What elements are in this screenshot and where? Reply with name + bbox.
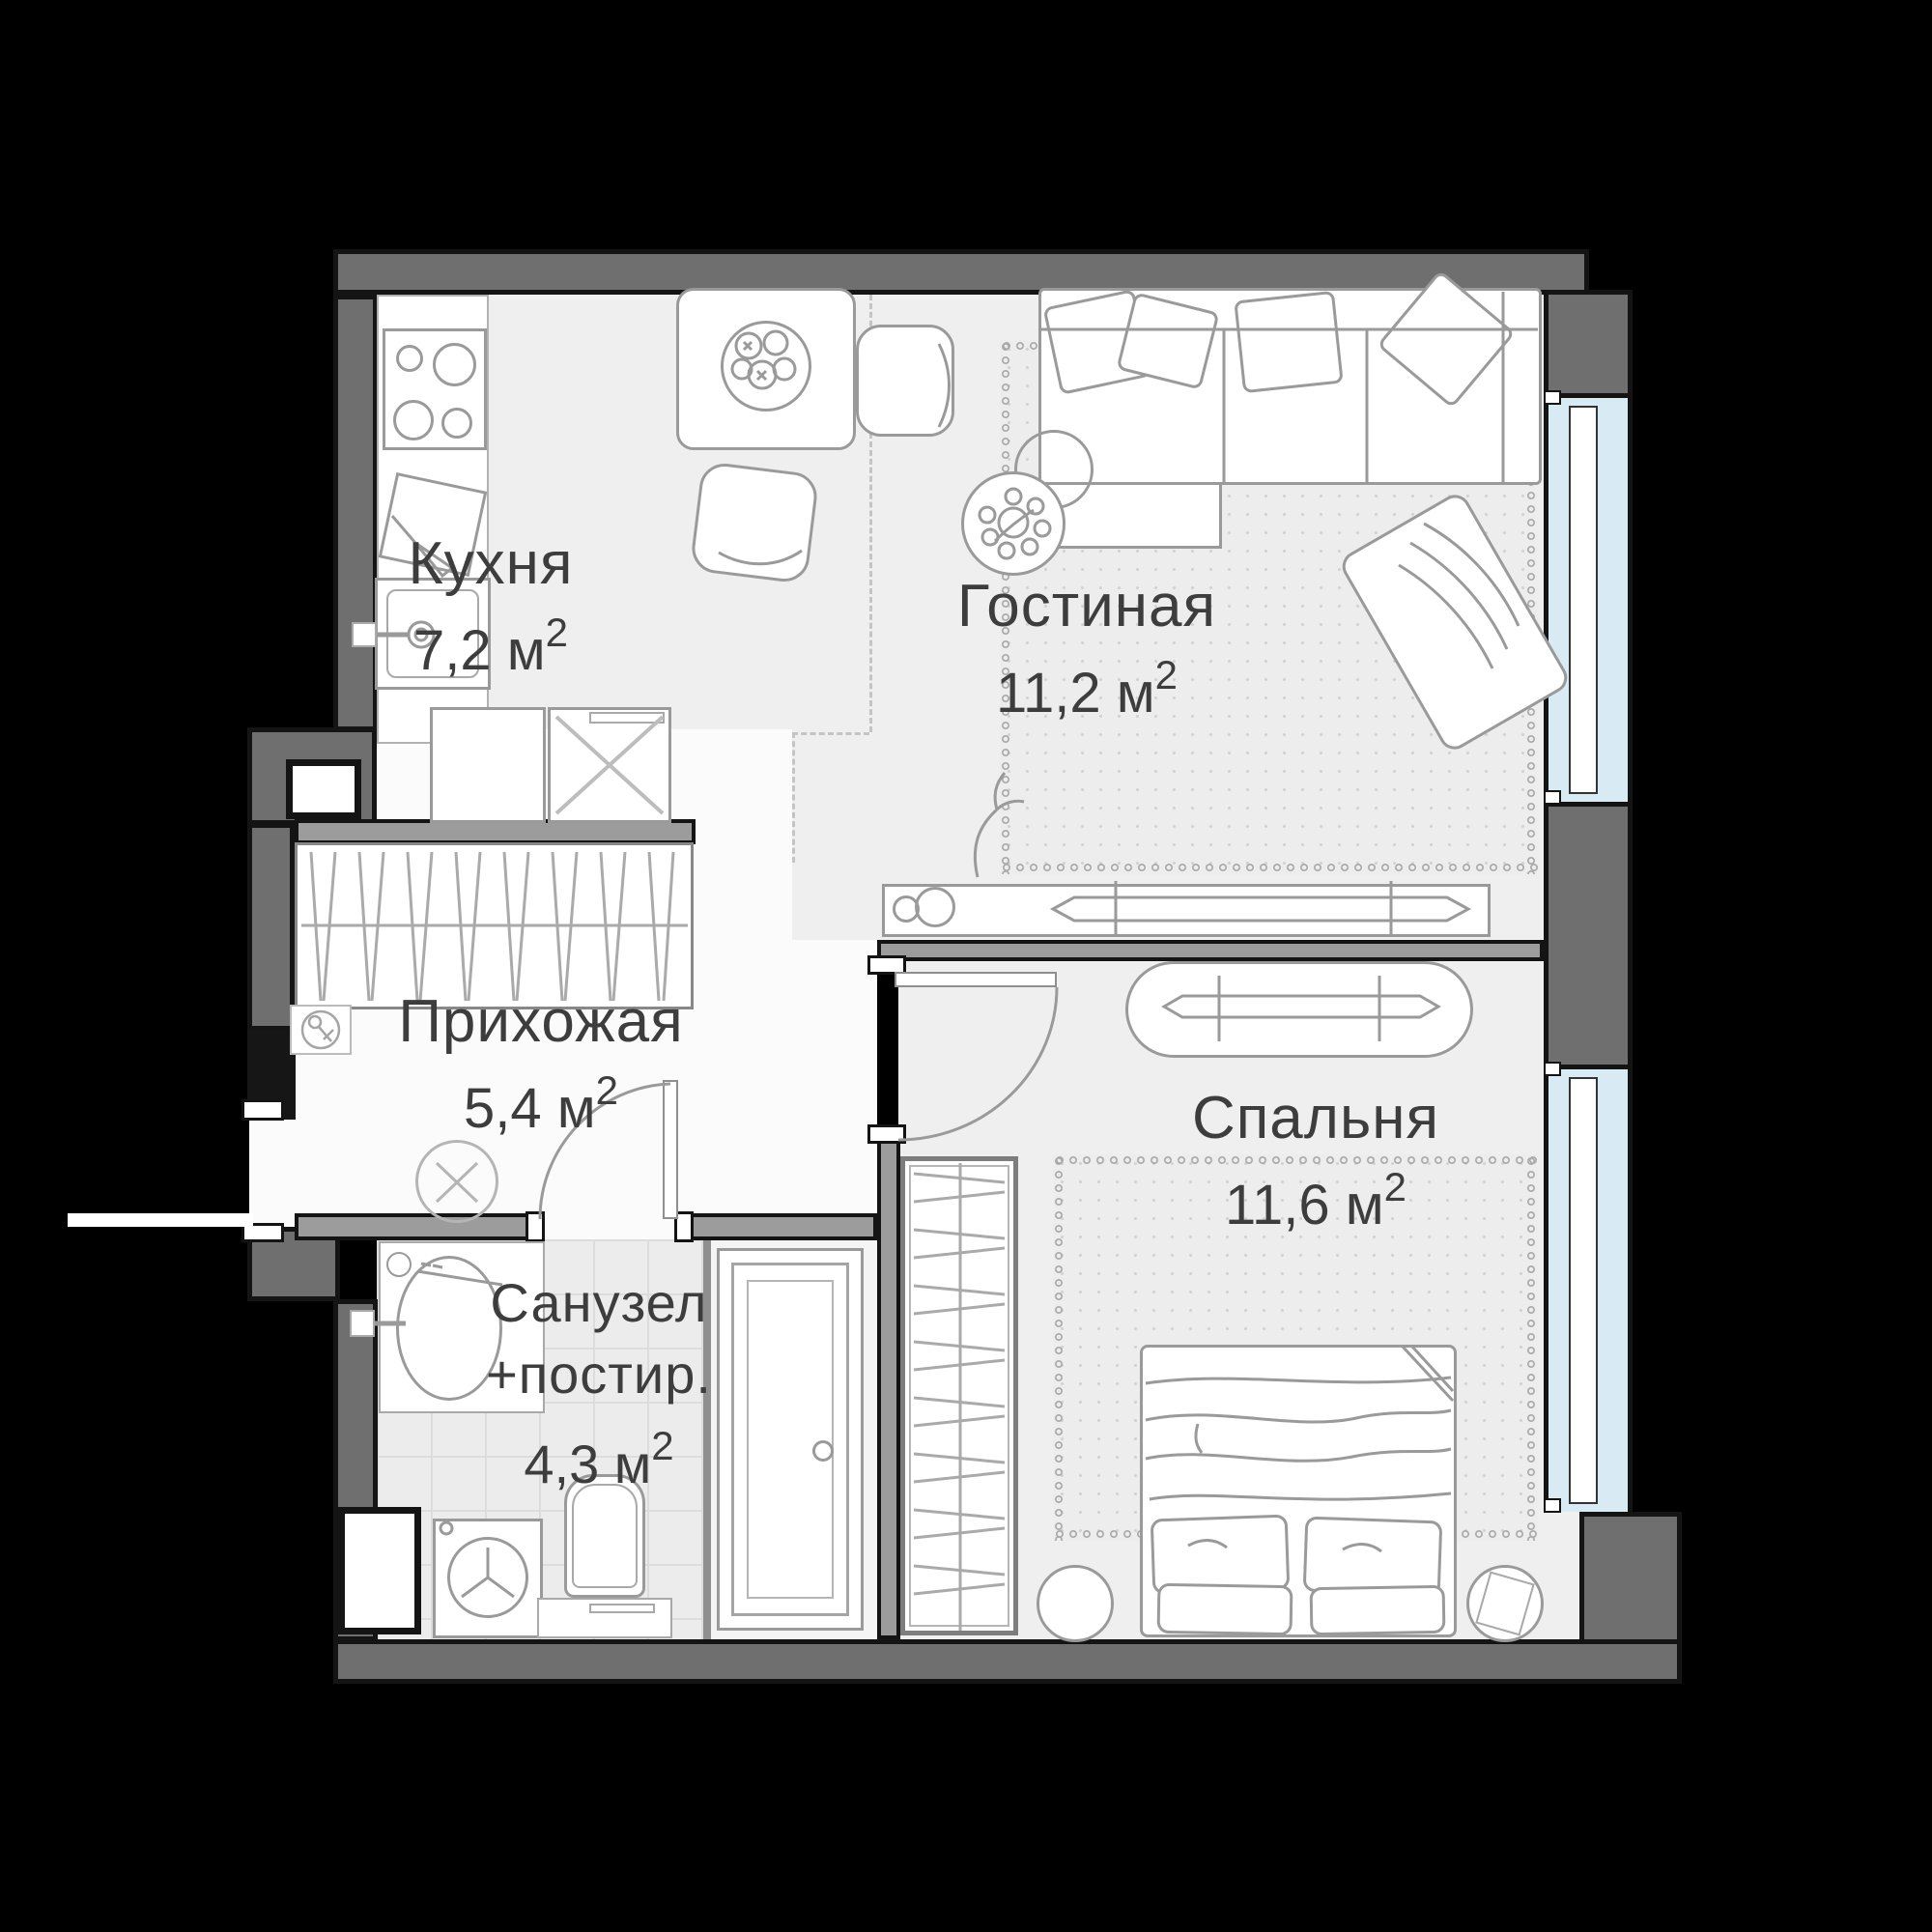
room-name: Санузел	[406, 1267, 792, 1339]
zone-line-horizontal	[792, 732, 869, 735]
wall-right-top-pier	[1544, 290, 1633, 398]
bedroom-window-frame	[1569, 1077, 1598, 1504]
window-sill-block	[1544, 390, 1561, 405]
room-area: 7,2 м2	[298, 599, 684, 685]
entry-key-marker	[290, 1005, 352, 1055]
bedroom-dresser	[1125, 961, 1473, 1058]
cabinet-handle	[589, 712, 665, 724]
rug-border-left	[1053, 1154, 1065, 1541]
dinner-plate	[721, 321, 811, 412]
utility-shaft-upper	[286, 759, 361, 819]
window-sill-block	[1544, 1062, 1561, 1076]
room-area: 11,6 м2	[1122, 1153, 1509, 1239]
tv-console	[882, 884, 1491, 937]
hallway-living-zone-line	[792, 732, 795, 863]
console-vase-large	[915, 887, 955, 927]
tall-cabinet-x-icon	[548, 707, 671, 823]
bathroom-door-jamb-left	[526, 1211, 545, 1242]
bath-faucet	[350, 1310, 375, 1337]
room-area: 11,2 м2	[894, 641, 1280, 727]
bedroom-wardrobe	[900, 1156, 1018, 1635]
wall-bathroom-top-left	[295, 1213, 545, 1240]
living-room-window-frame	[1569, 406, 1598, 794]
room-area: 4,3 м2	[406, 1410, 792, 1500]
washer-drum	[447, 1537, 528, 1618]
room-name-line2: +постир.	[406, 1339, 792, 1410]
stove-burner	[393, 400, 434, 440]
room-label-bedroom: Спальня 11,6 м2	[1122, 1084, 1509, 1239]
dining-chair-bottom	[690, 461, 820, 584]
sofa-pillow	[1234, 291, 1343, 393]
room-name: Кухня	[298, 529, 684, 599]
rug-border-right	[1525, 1154, 1538, 1541]
room-area: 5,4 м2	[348, 1057, 734, 1143]
floorplan-page: { "plan": { "type": "apartment-floor-pla…	[0, 0, 1932, 1932]
entry-doorway-floor	[249, 1120, 296, 1227]
room-name: Спальня	[1122, 1084, 1509, 1153]
bed-pillow	[1303, 1517, 1443, 1597]
wall-left-mid	[247, 823, 295, 1031]
room-label-bathroom: Санузел +постир. 4,3 м2	[406, 1267, 792, 1500]
door-knob	[812, 1440, 834, 1462]
entry-door-leaf	[68, 1213, 253, 1227]
bed-pillow-front	[1157, 1583, 1293, 1635]
living-room-floor-lower	[792, 729, 877, 940]
kitchen-lower-cabinet	[430, 707, 546, 823]
bedroom-floor-corner	[1544, 1512, 1579, 1639]
stove-burner	[433, 343, 476, 386]
bedroom-door-leaf	[895, 972, 1057, 987]
hallway-closet	[295, 842, 694, 1009]
room-label-kitchen: Кухня 7,2 м2	[298, 529, 684, 685]
stove-burner	[396, 345, 423, 372]
bed-pillow	[1151, 1515, 1291, 1595]
bedside-stool-left	[1037, 1565, 1114, 1642]
wall-bathroom-top-right	[676, 1213, 877, 1240]
window-sill-block	[1544, 1498, 1561, 1513]
room-name: Гостиная	[894, 572, 1280, 641]
dining-chair-right	[856, 325, 954, 437]
utility-shaft-lower	[338, 1507, 421, 1634]
wall-right-mid-pier	[1544, 802, 1633, 1069]
bed-pillow-front	[1310, 1585, 1446, 1635]
bedroom-door-jamb-bottom	[867, 1124, 906, 1144]
wall-bottom	[333, 1639, 1682, 1684]
ceiling-light-icon	[415, 1140, 498, 1223]
room-name: Прихожая	[348, 987, 734, 1057]
wall-living-bedroom	[877, 940, 1544, 961]
window-sill-block	[1544, 790, 1561, 805]
toilet-flush-bar	[589, 1604, 655, 1613]
room-label-hallway: Прихожая 5,4 м2	[348, 987, 734, 1143]
entry-door-jamb-top	[241, 1099, 284, 1121]
stove-burner	[441, 408, 472, 439]
rug-border-bottom	[1000, 862, 1538, 874]
wall-bedroom-stub	[877, 1140, 900, 1639]
room-label-living: Гостиная 11,2 м2	[894, 572, 1280, 727]
wardrobe-inner-line	[909, 1165, 1009, 1627]
coffee-table-with-flowers	[961, 471, 1065, 576]
